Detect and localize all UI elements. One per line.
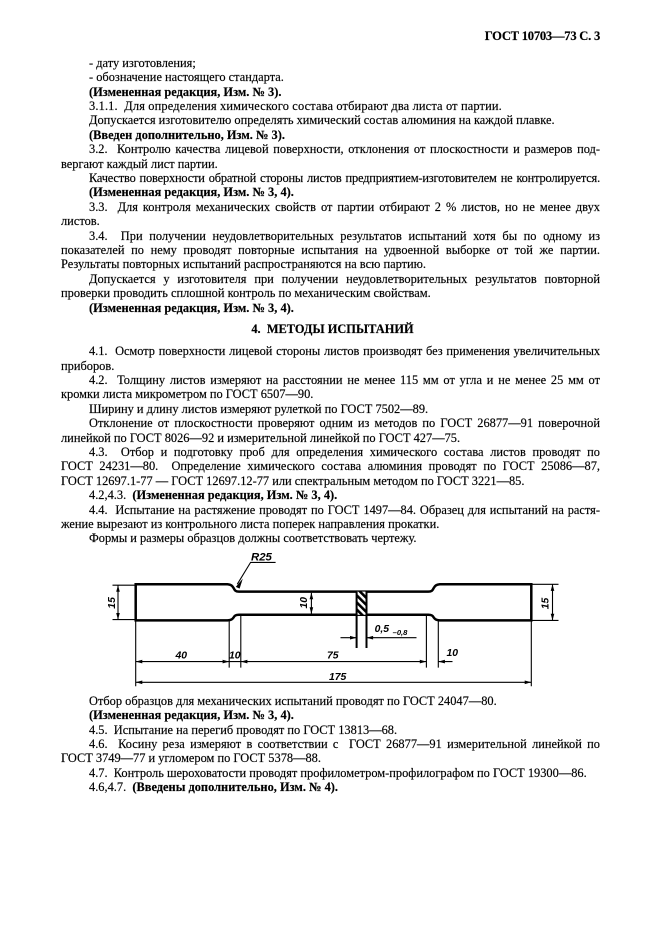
svg-text:–0,8: –0,8 <box>393 628 409 637</box>
svg-text:40: 40 <box>175 651 188 662</box>
svg-text:75: 75 <box>327 651 339 662</box>
svg-text:15: 15 <box>107 597 118 609</box>
svg-text:175: 175 <box>329 672 347 683</box>
svg-text:R25: R25 <box>251 551 273 563</box>
svg-text:10: 10 <box>229 651 241 662</box>
svg-text:10: 10 <box>447 648 459 659</box>
svg-text:15: 15 <box>541 598 552 610</box>
svg-text:10: 10 <box>299 597 310 609</box>
svg-text:0,5: 0,5 <box>375 624 390 635</box>
